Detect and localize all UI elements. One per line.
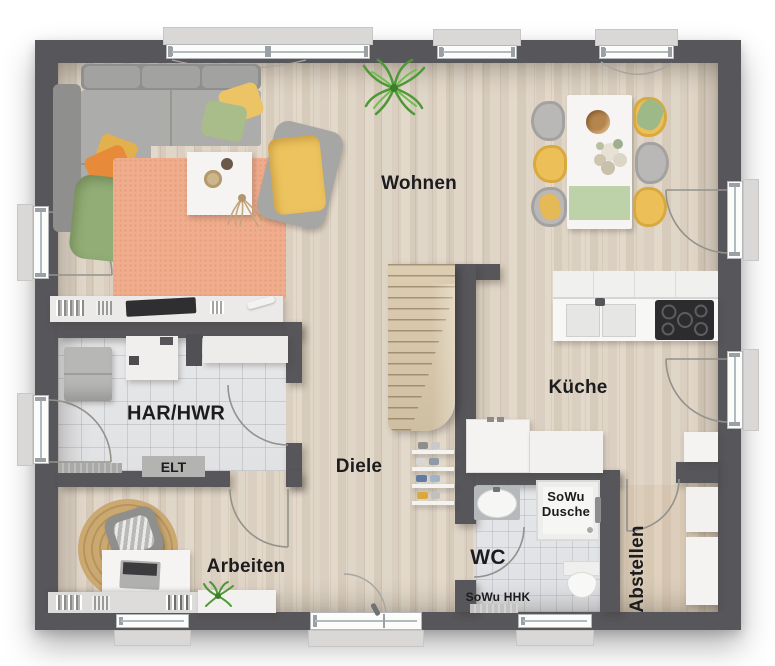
window-handle	[35, 208, 46, 212]
annotation-sowu-dusche: SoWu Dusche	[542, 489, 590, 519]
window-living-left	[33, 206, 49, 279]
books	[92, 596, 110, 610]
shoes	[416, 458, 426, 465]
shoe-shelf	[412, 484, 454, 488]
room-label-wohnen: Wohnen	[381, 173, 457, 195]
window-sill	[743, 349, 759, 431]
shoes	[417, 492, 428, 499]
window-sill	[163, 27, 373, 45]
kitchen-island-counter	[530, 431, 603, 473]
door-arc-office	[230, 489, 288, 547]
books	[166, 595, 192, 610]
books	[56, 300, 84, 316]
shoes	[416, 475, 427, 482]
shoes	[418, 442, 428, 449]
window-handle	[35, 273, 46, 277]
cooktop-burners	[655, 300, 714, 340]
window-sill	[595, 29, 678, 46]
kitchen-wall-units	[553, 271, 718, 299]
books	[210, 301, 224, 314]
window-sill	[433, 29, 521, 46]
table-flowers	[588, 132, 634, 182]
window-sill	[17, 204, 33, 281]
shoe-shelf	[412, 467, 454, 471]
entrance-door-divider	[383, 614, 385, 628]
radiator	[58, 463, 122, 473]
shoes	[431, 442, 440, 449]
stair-ramp	[432, 284, 455, 431]
window-handle	[729, 252, 740, 256]
fruit-bowl	[586, 110, 610, 134]
window-handle	[35, 397, 46, 401]
window-handle	[35, 458, 46, 462]
door-sill	[308, 630, 424, 647]
shoe-rack	[412, 444, 454, 512]
wc-radiator	[470, 604, 518, 613]
books	[96, 301, 112, 315]
shoes	[431, 492, 440, 499]
dining-chair-gray	[531, 101, 565, 141]
storage-cabinet	[686, 487, 718, 532]
laptop-screen	[123, 562, 158, 576]
entrance-door	[310, 612, 422, 630]
sofa-back-cushion	[84, 66, 140, 88]
wc-sink	[477, 489, 517, 518]
shoes	[429, 458, 439, 465]
storage-cabinet	[686, 537, 718, 605]
room-label-wc: WC	[470, 546, 505, 570]
kitchen-door-right	[727, 351, 743, 429]
armchair-throw-yellow	[267, 134, 327, 215]
room-label-har-hwr: HAR/HWR	[127, 403, 225, 426]
sofa-seat-gap	[170, 90, 172, 146]
dining-chair-yellow	[533, 145, 567, 183]
duct	[186, 334, 202, 366]
terrace-door-right	[727, 181, 743, 259]
door-arc-storage	[627, 479, 679, 531]
elt-box: ELT	[142, 456, 205, 477]
cabinet-handle	[487, 417, 494, 422]
window-sill	[516, 630, 594, 646]
room-label-kueche: Küche	[548, 377, 607, 399]
utility-device	[129, 356, 139, 365]
window-handle	[729, 422, 740, 426]
potted-plant	[360, 56, 428, 120]
floor-plan: ELT W	[0, 0, 775, 666]
faucet	[595, 298, 605, 306]
window-handle	[668, 47, 672, 57]
window-handle	[439, 47, 443, 57]
window-office-bottom	[116, 614, 189, 628]
sink-basin	[566, 304, 600, 337]
window-dining-top	[599, 45, 674, 59]
window-sill	[114, 630, 191, 646]
bowl	[204, 170, 222, 188]
utility-shelf	[203, 336, 288, 363]
room-label-diele: Diele	[336, 456, 382, 478]
table-runner-green	[569, 186, 630, 220]
window-handle	[729, 353, 740, 357]
vase	[221, 158, 233, 170]
window-handle	[729, 183, 740, 187]
shelf-plant	[200, 578, 236, 612]
dining-chair-gray	[635, 142, 669, 184]
shoe-shelf	[412, 450, 454, 454]
shoe-shelf	[412, 501, 454, 505]
room-label-arbeiten: Arbeiten	[207, 556, 286, 578]
kitchen-cabinet-island	[466, 419, 530, 473]
sink-basin	[602, 304, 636, 337]
cabinet-handle	[497, 417, 504, 422]
window-handle	[168, 46, 172, 57]
door-arc-kitchen-right	[666, 359, 729, 422]
window-utility-left	[33, 395, 49, 464]
window-mullion	[265, 46, 271, 57]
kitchen-corner-cabinet	[684, 432, 718, 462]
sowu-dusche-line2: Dusche	[542, 504, 590, 519]
books	[56, 595, 82, 610]
room-label-abstellen: Abstellen	[627, 525, 649, 612]
wc-faucet	[493, 487, 500, 492]
shower-fitting	[595, 497, 601, 523]
window-handle	[511, 47, 515, 57]
door-arc-entrance	[344, 574, 386, 616]
tilt-window-marker-right	[601, 62, 672, 74]
window-wc-bottom	[518, 614, 592, 628]
staircase	[388, 264, 455, 431]
utility-device	[160, 337, 173, 345]
window-top-center	[437, 45, 517, 59]
dining-chair-yellow	[633, 187, 667, 227]
shoes	[430, 475, 440, 482]
elt-label: ELT	[161, 459, 186, 475]
window-sill	[17, 393, 33, 466]
window-sill	[743, 179, 759, 261]
sowu-dusche-line1: SoWu	[547, 489, 584, 504]
door-arc-utility-left	[49, 400, 111, 462]
shower-drain	[587, 527, 593, 533]
door-arc-utility-inner	[228, 385, 288, 445]
washing-machine-divider	[64, 373, 112, 375]
sofa-back-cushion	[142, 66, 200, 88]
annotation-sowu-hhk: SoWu HHK	[466, 590, 531, 604]
window-handle	[601, 47, 605, 57]
door-arc-terrace-right	[666, 190, 729, 253]
